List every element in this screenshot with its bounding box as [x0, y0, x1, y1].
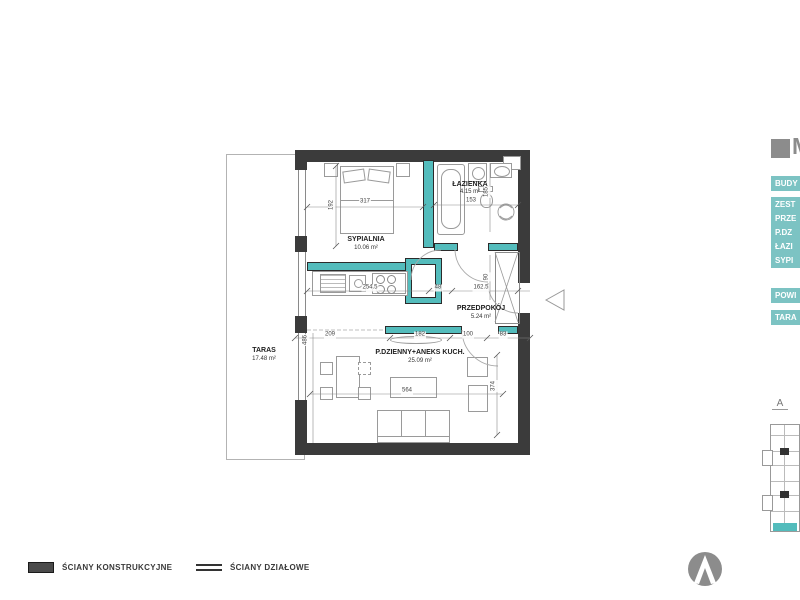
dim-seg3: 100 [462, 332, 474, 339]
panel-bar-building-label: BUDY [775, 179, 798, 188]
room-area-przedpokoj: 5.24 m² [471, 314, 491, 321]
dim-hall-width: 162.5 [472, 285, 489, 292]
dim-bedroom-width: 317 [359, 199, 371, 206]
dim-seg4: 83 [499, 332, 508, 339]
dim-living-height-right: 374 [491, 380, 498, 392]
dim-seg1: 209 [324, 332, 336, 339]
dim-shaft-height: 90 [484, 273, 491, 282]
panel-row-przedpokoj: PRZE [775, 212, 800, 226]
dim-bath-width: 153 [465, 198, 477, 205]
room-label-lazienka: ŁAZIENKA [452, 181, 487, 189]
entrance-arrow-icon [546, 290, 564, 310]
room-area-sypialnia: 10.06 m² [354, 245, 378, 252]
key-plan-core [780, 448, 789, 455]
fan-icon [498, 204, 514, 220]
key-plan-section-label: A [772, 398, 788, 410]
legend-label-partition: ŚCIANY DZIAŁOWE [230, 562, 309, 573]
key-plan-balcony [762, 450, 773, 466]
unit-number-letter: M [792, 134, 800, 158]
room-area-lazienka: 4.15 m² [460, 189, 480, 196]
key-plan-highlighted-unit [773, 523, 797, 531]
plan-linework [0, 0, 800, 600]
door-arc-bedroom [411, 250, 441, 280]
dim-door-width: 48 [434, 285, 443, 292]
key-plan-line [771, 435, 799, 436]
dim-bath-height: 185 [484, 186, 491, 198]
key-plan-building [770, 424, 800, 532]
panel-bar-area-label: POWI [775, 291, 796, 300]
key-plan-line [771, 465, 799, 466]
panel-room-list: ZEST PRZE P.DZ ŁAZI SYPI [771, 197, 800, 268]
panel-row-zestawienie: ZEST [775, 198, 800, 212]
key-plan-line [771, 511, 799, 512]
key-plan-balcony [762, 495, 773, 511]
north-compass-icon [685, 550, 725, 590]
panel-bar-building[interactable]: BUDY [771, 176, 800, 191]
panel-row-lazienka: ŁAZI [775, 240, 800, 254]
panel-bar-area: POWI [771, 288, 800, 303]
panel-row-sypialnia: SYPI [775, 254, 800, 268]
legend-label-structural: ŚCIANY KONSTRUKCYJNE [62, 562, 172, 573]
key-plan-core [780, 491, 789, 498]
dim-kitchen-width: 254.5 [361, 285, 378, 292]
key-plan-line [771, 481, 799, 482]
panel-bar-taras-label: TARA [775, 313, 797, 322]
dim-bedroom-height: 192 [329, 199, 336, 211]
floor-plan-page: TARAS 17.48 m² [0, 0, 800, 600]
dim-seg2: 182 [414, 332, 426, 339]
room-label-przedpokoj: PRZEDPOKÓJ [457, 305, 505, 313]
dim-living-width: 564 [401, 388, 413, 395]
key-plan-line [784, 425, 785, 531]
room-label-sypialnia: SYPIALNIA [347, 236, 384, 244]
legend-swatch-partition [196, 564, 222, 571]
unit-number-box [771, 139, 790, 158]
dim-living-height-left: 486 [303, 334, 310, 346]
panel-bar-taras: TARA [771, 310, 800, 325]
legend-swatch-structural [28, 562, 54, 573]
room-label-dzienny: P.DZIENNY+ANEKS KUCH. [375, 349, 464, 357]
panel-row-pdzienny: P.DZ [775, 226, 800, 240]
room-area-dzienny: 25.09 m² [408, 358, 432, 365]
